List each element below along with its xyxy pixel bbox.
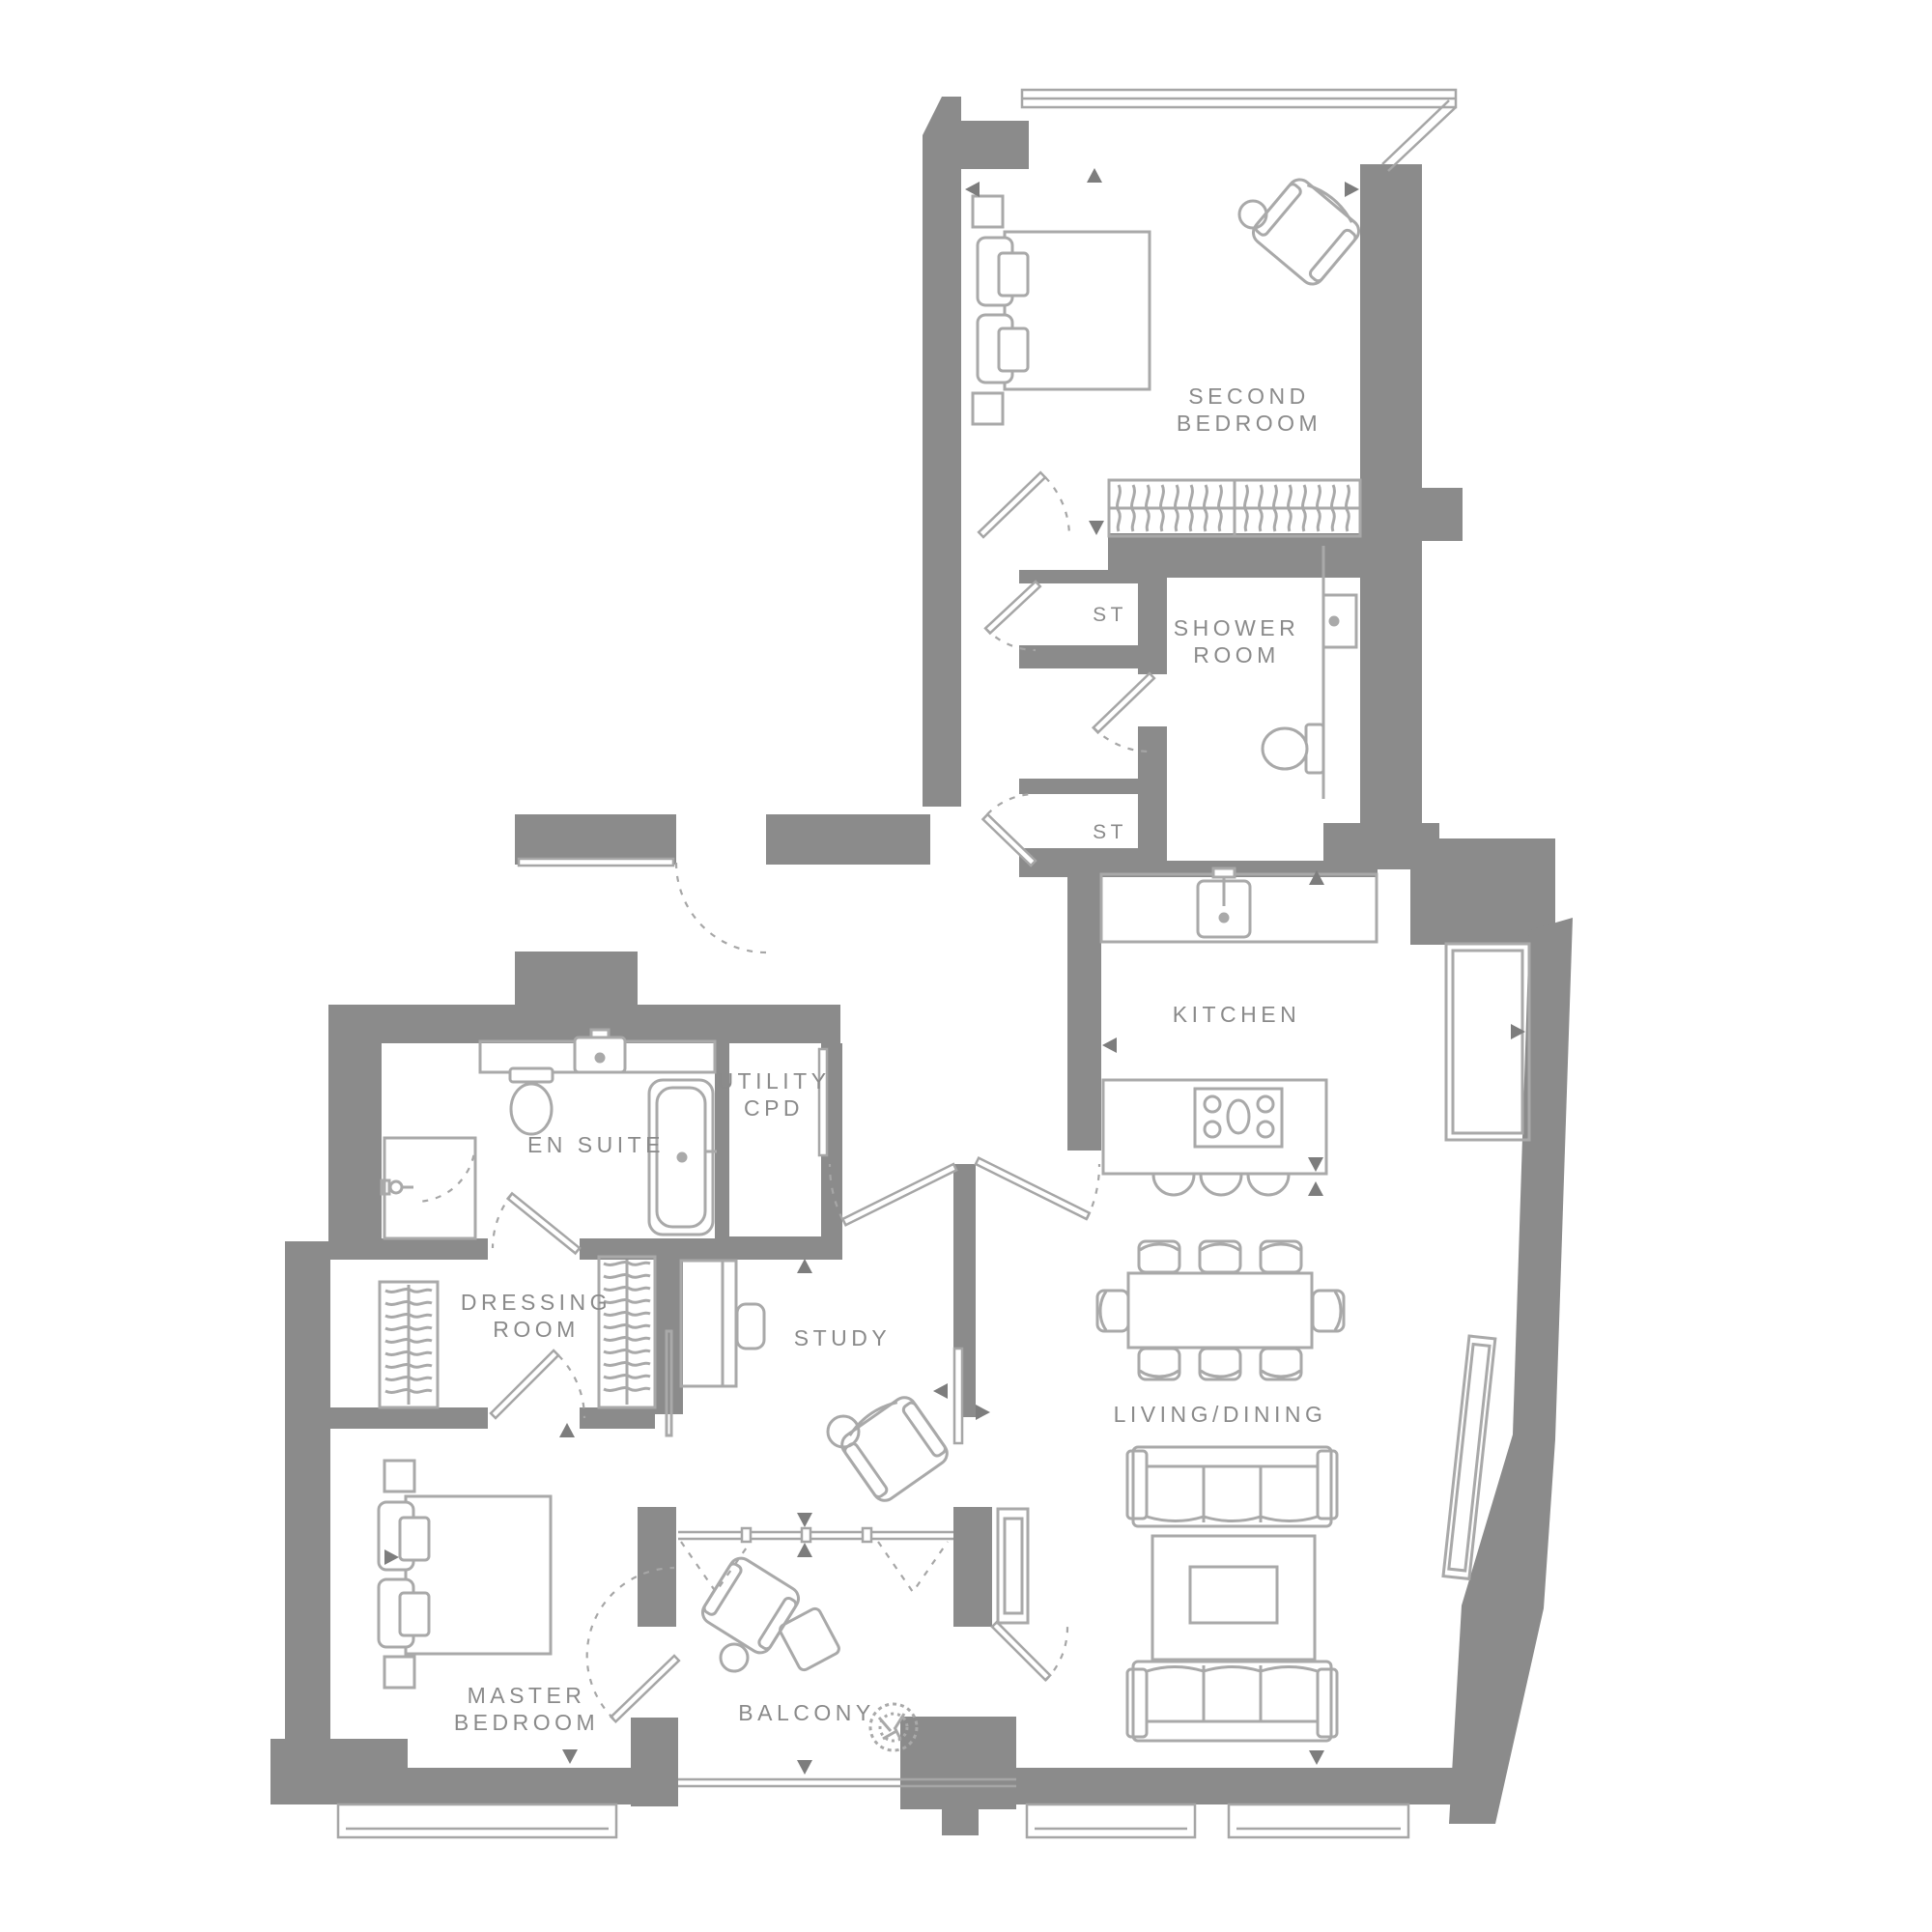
bed-icon [978,232,1150,389]
basin-icon [1323,595,1356,647]
nightstand-icon [384,1461,414,1492]
shower-tray [384,1138,475,1238]
label-en-suite: EN SUITE [527,1132,665,1157]
door-shower-enclosure [415,1142,475,1202]
door-storage-top [985,582,1040,650]
sink-icon [1198,868,1250,937]
balcony-chair-icon [778,1606,840,1672]
label-study: STUDY [794,1325,891,1350]
dining-table-icon [1128,1273,1312,1348]
sofa-icon [1127,1447,1337,1526]
desk-icon [681,1261,736,1386]
kitchen-island [1103,1080,1326,1174]
toilet-icon [1263,724,1323,773]
door-storage-mid [983,794,1036,866]
label-shower-room: SHOWER [1174,615,1300,640]
door-en-suite [493,1193,580,1253]
label-utility: CPD [744,1095,804,1121]
dining-chair-icon [1097,1241,1344,1379]
label-dressing-room: DRESSING [461,1290,611,1315]
wardrobe-icon [599,1257,655,1407]
wardrobe-icon [380,1282,438,1407]
wardrobe-icon [1109,480,1360,536]
door-entrance [519,859,766,952]
label-utility: UTILITY [717,1068,830,1094]
toilet-icon [510,1068,553,1134]
door-double-hall-left [830,1164,956,1225]
bar-stool-icon [1153,1175,1289,1195]
label-dressing-room: ROOM [493,1317,580,1342]
side-table-icon [1239,201,1266,228]
coffee-table-icon [1152,1536,1315,1660]
bath-icon [649,1080,717,1235]
window-bay-living-left [1027,1804,1195,1837]
door-living-balcony [992,1622,1067,1681]
floor-plan-svg: SECOND BEDROOM ST SHOWER ROOM ST KITCHEN… [0,0,1932,1932]
label-second-bedroom: SECOND [1188,384,1309,409]
window-bay-living-right [1229,1804,1408,1837]
hob-icon [1195,1089,1282,1147]
radiator-icon [998,1509,1028,1623]
desk-chair-icon [737,1304,764,1349]
label-kitchen: KITCHEN [1173,1002,1300,1027]
door-second-bedroom [979,472,1069,537]
armchair-icon [836,1390,952,1505]
bed-icon [379,1496,551,1654]
nightstand-icon [973,196,1003,227]
sofa-icon [1127,1662,1337,1741]
shower-head-icon [382,1180,413,1194]
label-storage-mid: ST [1093,821,1127,843]
kitchen-tall-unit [1446,944,1529,1140]
label-shower-room: ROOM [1193,642,1280,668]
door-master-bedroom [491,1350,584,1418]
label-master-bedroom: BEDROOM [454,1710,599,1735]
window-bay-master [338,1804,616,1837]
door-study-pocket [954,1349,962,1443]
basin-icon [575,1030,625,1072]
label-master-bedroom: MASTER [468,1683,586,1708]
label-balcony: BALCONY [738,1700,874,1725]
door-double-hall-right [976,1158,1099,1219]
label-storage-top: ST [1093,604,1127,626]
nightstand-icon [973,393,1003,424]
label-second-bedroom: BEDROOM [1177,411,1321,436]
nightstand-icon [384,1657,414,1688]
floor-plan-page: SECOND BEDROOM ST SHOWER ROOM ST KITCHEN… [0,0,1932,1932]
window-second-bedroom [1022,90,1456,171]
side-table-icon [721,1644,748,1671]
door-utility-cupboard [819,1049,827,1155]
label-living-dining: LIVING/DINING [1114,1402,1327,1427]
